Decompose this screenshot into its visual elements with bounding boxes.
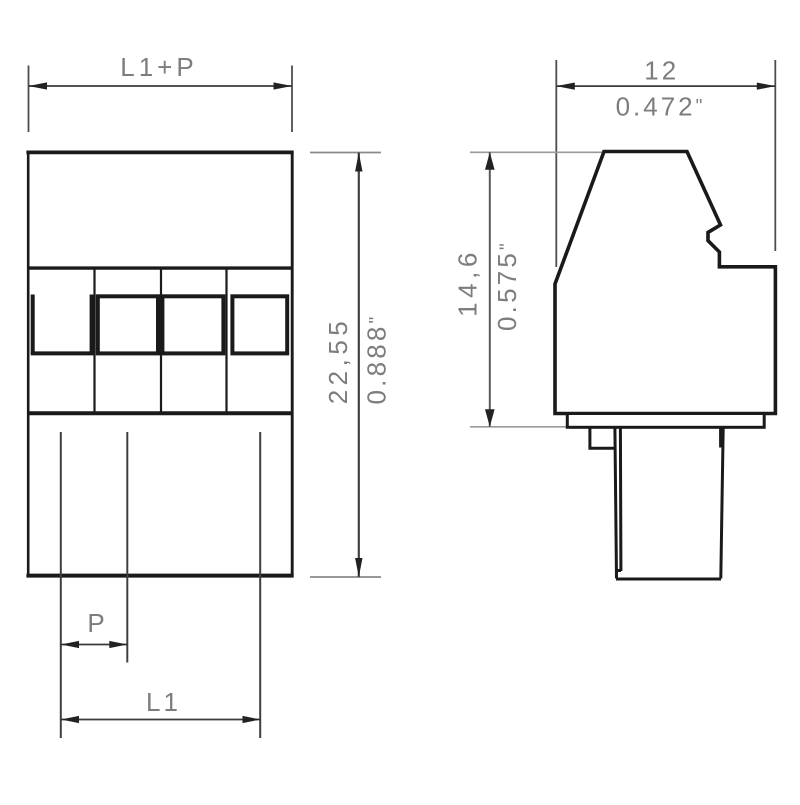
svg-text:P: P xyxy=(87,608,107,638)
svg-text:12: 12 xyxy=(644,56,679,86)
svg-text:22,55: 22,55 xyxy=(323,317,353,405)
svg-text:0.888": 0.888" xyxy=(362,313,392,404)
svg-text:14,6: 14,6 xyxy=(453,248,483,317)
svg-text:L1: L1 xyxy=(146,687,181,717)
svg-text:L1+P: L1+P xyxy=(120,52,197,82)
svg-text:0.472": 0.472" xyxy=(616,92,706,122)
svg-text:0.575": 0.575" xyxy=(492,240,522,331)
